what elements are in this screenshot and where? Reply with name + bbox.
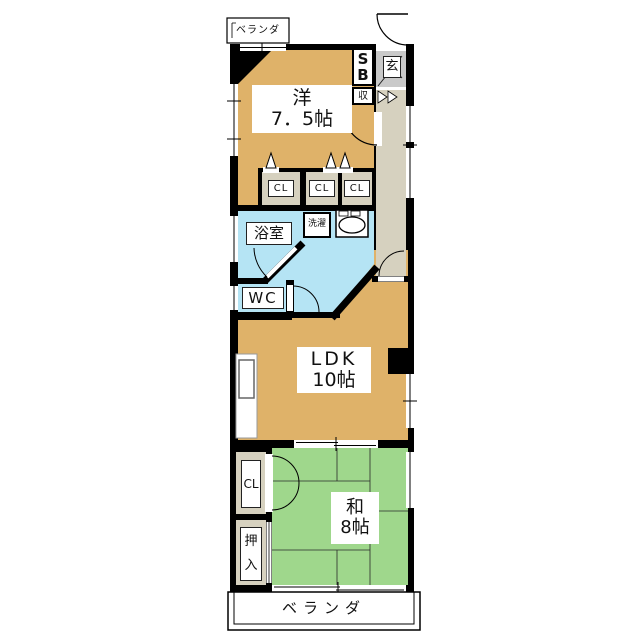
western-room-label: 洋 7．5帖: [252, 85, 352, 133]
laundry-label: 洗濯: [303, 212, 331, 238]
pillar: [388, 348, 408, 374]
closet-label-1: CL: [268, 180, 294, 197]
wc-door: [287, 285, 293, 311]
entrance-door-arc: [377, 14, 408, 45]
western-room-size: 7．5帖: [271, 109, 333, 130]
wc-bottom-wall: [232, 312, 292, 320]
entrance-label: 玄: [383, 56, 401, 78]
kitchen-sink: [239, 360, 254, 398]
closet-left-opening: [265, 454, 273, 512]
wc-top-wall: [232, 278, 268, 284]
hallway-door: [378, 277, 404, 282]
oshiire-fusuma: [267, 522, 272, 583]
ldk-size: 10帖: [312, 370, 355, 391]
japanese-room-label: 和 8帖: [331, 492, 379, 544]
entrance-opening: [376, 44, 406, 51]
western-room-name: 洋: [292, 88, 311, 109]
ldk-name: LDK: [311, 349, 358, 370]
storage-label: 収: [352, 87, 374, 105]
bathroom-label: 浴室: [246, 222, 292, 245]
veranda-bottom-label: ベランダ: [238, 598, 410, 618]
closet-label-2: CL: [309, 180, 335, 197]
oshiire-label: 押入: [240, 527, 262, 581]
wash-basin: [336, 210, 368, 237]
floorplan-page: ベランダ 洋 7．5帖 SB 収 玄 CL CL CL 浴室 洗濯 WC LDK…: [0, 0, 640, 640]
closet-left-label: CL: [241, 460, 261, 508]
shoe-box-label: SB: [352, 48, 374, 86]
western-door: [374, 112, 382, 146]
japanese-room-size: 8帖: [340, 518, 369, 538]
genkan-step-line: [376, 87, 406, 90]
veranda-top-label: ベランダ: [229, 20, 287, 41]
ldk-label: LDK 10帖: [297, 347, 371, 393]
japanese-room-name: 和: [346, 498, 364, 518]
wc-label: WC: [242, 287, 284, 309]
kitchen-counter: [236, 354, 257, 438]
closet-label-3: CL: [344, 180, 370, 197]
